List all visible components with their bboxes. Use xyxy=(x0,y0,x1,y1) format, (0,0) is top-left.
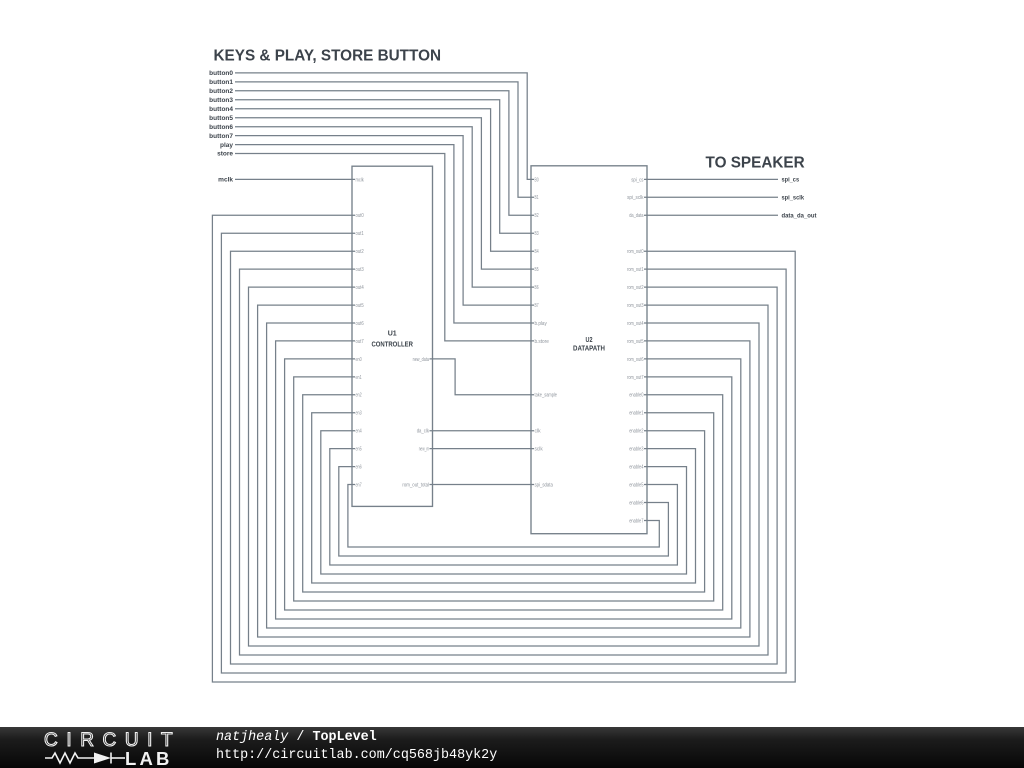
svg-text:enable5: enable5 xyxy=(629,482,643,488)
svg-text:CONTROLLER: CONTROLLER xyxy=(371,340,413,349)
svg-text:B6: B6 xyxy=(535,285,539,291)
svg-text:LAB: LAB xyxy=(125,748,173,768)
svg-text:mclk: mclk xyxy=(356,177,365,183)
svg-text:out1: out1 xyxy=(356,231,364,237)
svg-text:B1: B1 xyxy=(535,195,539,201)
svg-text:en3: en3 xyxy=(356,411,362,417)
svg-text:enable7: enable7 xyxy=(629,518,643,524)
svg-text:take_sample: take_sample xyxy=(535,393,558,399)
svg-text:out0: out0 xyxy=(356,213,364,219)
svg-text:clk: clk xyxy=(535,429,541,435)
svg-text:enable1: enable1 xyxy=(629,411,643,417)
svg-text:out2: out2 xyxy=(356,249,364,255)
svg-text:da_data: da_data xyxy=(629,213,643,219)
svg-text:spi_sclk: spi_sclk xyxy=(627,195,644,201)
svg-text:out6: out6 xyxy=(356,321,364,327)
svg-text:enable3: enable3 xyxy=(629,447,643,453)
svg-text:rom_out3: rom_out3 xyxy=(627,303,643,309)
svg-text:rom_out7: rom_out7 xyxy=(627,375,643,381)
svg-text:out3: out3 xyxy=(356,267,364,273)
svg-text:button5: button5 xyxy=(209,115,233,122)
svg-text:button4: button4 xyxy=(209,106,233,113)
svg-text:b.play: b.play xyxy=(535,321,548,327)
svg-text:en0: en0 xyxy=(356,357,362,363)
svg-text:B0: B0 xyxy=(535,177,539,183)
svg-text:B5: B5 xyxy=(535,267,539,273)
svg-text:rom_out1: rom_out1 xyxy=(627,267,643,273)
svg-text:out7: out7 xyxy=(356,339,364,345)
svg-text:rom_out4: rom_out4 xyxy=(627,321,643,327)
svg-text:spi_sdata: spi_sdata xyxy=(535,482,553,488)
svg-text:en5: en5 xyxy=(356,447,362,453)
svg-text:en2: en2 xyxy=(356,393,362,399)
svg-text:data_da_out: data_da_out xyxy=(782,213,818,220)
svg-text:rom_out2: rom_out2 xyxy=(627,285,643,291)
svg-text:rom_out_total: rom_out_total xyxy=(402,482,429,488)
svg-text:button7: button7 xyxy=(209,133,233,140)
svg-text:en6: en6 xyxy=(356,465,362,471)
svg-text:spi_cs: spi_cs xyxy=(631,177,644,183)
svg-text:button3: button3 xyxy=(209,97,233,104)
svg-text:new_m: new_m xyxy=(419,447,429,453)
svg-text:play: play xyxy=(220,142,233,149)
svg-text:spi_sclk: spi_sclk xyxy=(782,195,805,202)
svg-text:en7: en7 xyxy=(356,482,362,488)
svg-text:B3: B3 xyxy=(535,231,539,237)
svg-text:U1: U1 xyxy=(388,329,398,338)
svg-text:DATAPATH: DATAPATH xyxy=(573,344,605,353)
svg-text:sclk: sclk xyxy=(535,447,544,453)
svg-text:button1: button1 xyxy=(209,79,233,86)
svg-text:en4: en4 xyxy=(356,429,362,435)
svg-text:B2: B2 xyxy=(535,213,539,219)
svg-text:b.store: b.store xyxy=(535,339,549,345)
svg-text:enable6: enable6 xyxy=(629,500,643,506)
svg-text:rom_out6: rom_out6 xyxy=(627,357,643,363)
svg-text:rom_out0: rom_out0 xyxy=(627,249,643,255)
svg-text:spi_cs: spi_cs xyxy=(782,177,800,184)
svg-text:B4: B4 xyxy=(535,249,539,255)
svg-text:enable2: enable2 xyxy=(629,429,643,435)
svg-text:enable4: enable4 xyxy=(629,465,643,471)
svg-text:button6: button6 xyxy=(209,124,233,131)
svg-text:store: store xyxy=(217,151,233,158)
svg-text:TO SPEAKER: TO SPEAKER xyxy=(706,155,805,172)
svg-text:button0: button0 xyxy=(209,70,233,77)
svg-text:button2: button2 xyxy=(209,88,233,95)
svg-text:KEYS & PLAY, STORE BUTTON: KEYS & PLAY, STORE BUTTON xyxy=(214,48,442,65)
svg-text:out4: out4 xyxy=(356,285,364,291)
svg-text:mclk: mclk xyxy=(218,177,233,184)
svg-text:new_data: new_data xyxy=(413,357,429,363)
svg-text:da_clk: da_clk xyxy=(417,429,430,435)
svg-text:en1: en1 xyxy=(356,375,362,381)
svg-text:rom_out5: rom_out5 xyxy=(627,339,643,345)
svg-text:enable0: enable0 xyxy=(629,393,643,399)
svg-text:B7: B7 xyxy=(535,303,539,309)
svg-text:out5: out5 xyxy=(356,303,364,309)
